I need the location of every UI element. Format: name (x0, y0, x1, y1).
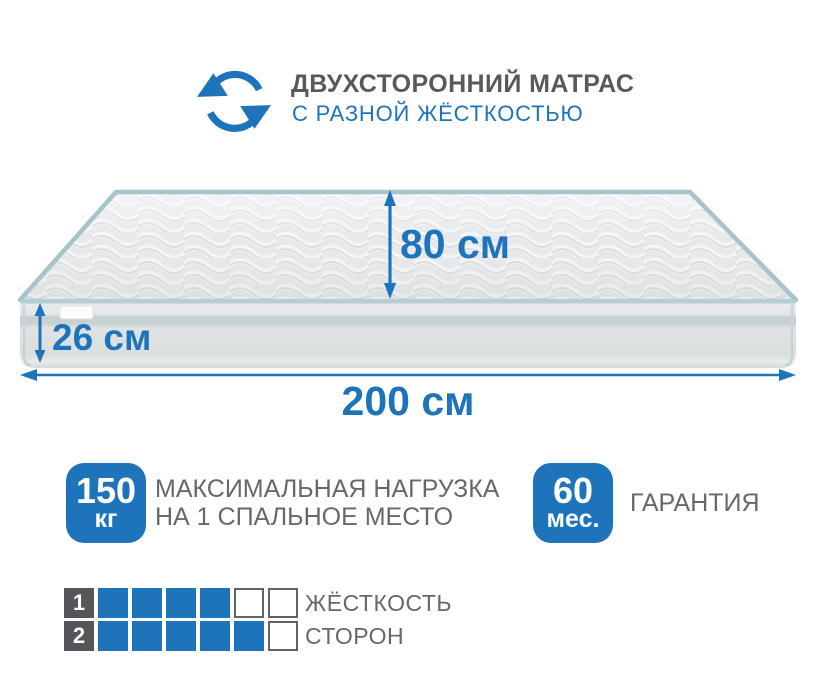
max-load-label: МАКСИМАЛЬНАЯ НАГРУЗКА НА 1 СПАЛЬНОЕ МЕСТ… (155, 475, 499, 531)
max-load-badge: 150 кг (66, 463, 146, 543)
depth-dimension-label: 80 см (400, 221, 510, 268)
page-title: ДВУХСТОРОННИЙ МАТРАС (291, 70, 634, 99)
firmness-cell-filled (200, 588, 230, 618)
width-dimension-label: 200 см (0, 378, 816, 425)
firmness-row: 1 (64, 588, 302, 618)
firmness-caption-line1: ЖЁСТКОСТЬ (305, 587, 452, 620)
max-load-label-line2: НА 1 СПАЛЬНОЕ МЕСТО (155, 503, 499, 531)
firmness-cell-filled (200, 621, 230, 651)
warranty-value: 60 (553, 474, 593, 507)
firmness-cell-filled (132, 588, 162, 618)
firmness-caption: ЖЁСТКОСТЬ СТОРОН (305, 587, 452, 653)
max-load-label-line1: МАКСИМАЛЬНАЯ НАГРУЗКА (155, 475, 499, 503)
max-load-unit: кг (95, 507, 118, 532)
firmness-row-label: 2 (64, 621, 94, 651)
firmness-cell-filled (234, 621, 264, 651)
firmness-cell-empty (234, 588, 264, 618)
firmness-cell-empty (268, 588, 298, 618)
firmness-row-label: 1 (64, 588, 94, 618)
firmness-cell-filled (166, 621, 196, 651)
firmness-grid: 12 (64, 588, 302, 654)
max-load-value: 150 (76, 474, 136, 507)
firmness-cell-filled (98, 621, 128, 651)
firmness-cell-filled (98, 588, 128, 618)
page-subtitle: С РАЗНОЙ ЖЁСТКОСТЬЮ (292, 101, 584, 127)
height-dimension-label: 26 см (52, 317, 151, 359)
warranty-unit: мес. (547, 507, 600, 532)
firmness-cell-filled (132, 621, 162, 651)
warranty-label: ГАРАНТИЯ (630, 489, 760, 517)
rotate-arrows-icon (196, 63, 272, 139)
firmness-cell-filled (166, 588, 196, 618)
mattress-infographic: ДВУХСТОРОННИЙ МАТРАС С РАЗНОЙ ЖЁСТКОСТЬЮ (0, 0, 816, 700)
firmness-cell-empty (268, 621, 298, 651)
firmness-caption-line2: СТОРОН (305, 620, 452, 653)
firmness-row: 2 (64, 621, 302, 651)
warranty-badge: 60 мес. (533, 463, 613, 543)
